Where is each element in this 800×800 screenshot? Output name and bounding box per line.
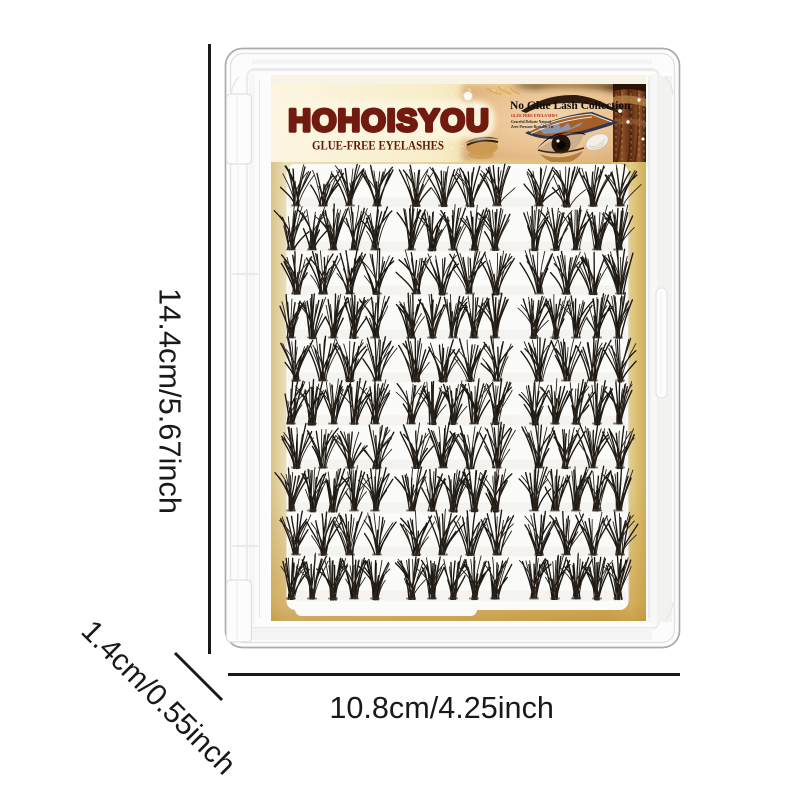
svg-text:Zero-Pressure Reusable Fit: Zero-Pressure Reusable Fit <box>511 125 554 129</box>
svg-text:10.8cm/4.25inch: 10.8cm/4.25inch <box>329 691 554 725</box>
svg-text:GLUE FREE EYELA’SHS®: GLUE FREE EYELA’SHS® <box>511 113 558 118</box>
svg-text:No Glue Lash Collection: No Glue Lash Collection <box>510 100 631 112</box>
svg-text:GLUE-FREE EYELASHES: GLUE-FREE EYELASHES <box>312 139 444 153</box>
svg-text:14.4cm/5.67inch: 14.4cm/5.67inch <box>153 288 188 514</box>
svg-text:HOHOISYOU: HOHOISYOU <box>288 102 490 138</box>
svg-text:Graceful Delicate Natural: Graceful Delicate Natural <box>511 120 551 124</box>
